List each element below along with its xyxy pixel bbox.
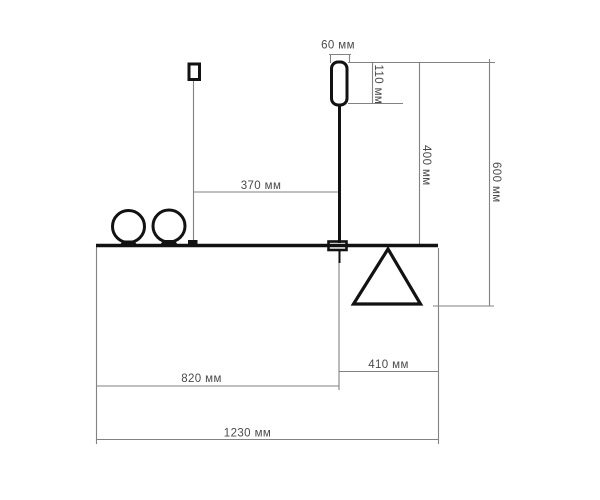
dim-label-820: 820 мм bbox=[181, 373, 222, 385]
cone-triangle bbox=[354, 249, 421, 304]
sphere-right bbox=[153, 210, 185, 242]
dim-label-1230: 1230 мм bbox=[224, 428, 271, 440]
dimension-labels: 60 мм 110 мм 400 мм 600 мм 370 мм 820 мм… bbox=[181, 40, 502, 440]
dimension-lines bbox=[97, 55, 496, 445]
technical-drawing: 60 мм 110 мм 400 мм 600 мм 370 мм 820 мм… bbox=[0, 0, 600, 500]
dim-label-410: 410 мм bbox=[368, 359, 409, 371]
drawing-canvas: 60 мм 110 мм 400 мм 600 мм 370 мм 820 мм… bbox=[0, 0, 600, 500]
dim-label-110: 110 мм bbox=[372, 65, 384, 105]
dim-label-60: 60 мм bbox=[321, 40, 355, 52]
lamp-capsule bbox=[332, 62, 348, 105]
hanging-detector bbox=[189, 64, 200, 80]
dim-label-400: 400 мм bbox=[420, 145, 432, 186]
dim-label-370: 370 мм bbox=[241, 180, 282, 192]
dim-label-600: 600 мм bbox=[490, 162, 502, 203]
sphere-left bbox=[113, 211, 145, 243]
